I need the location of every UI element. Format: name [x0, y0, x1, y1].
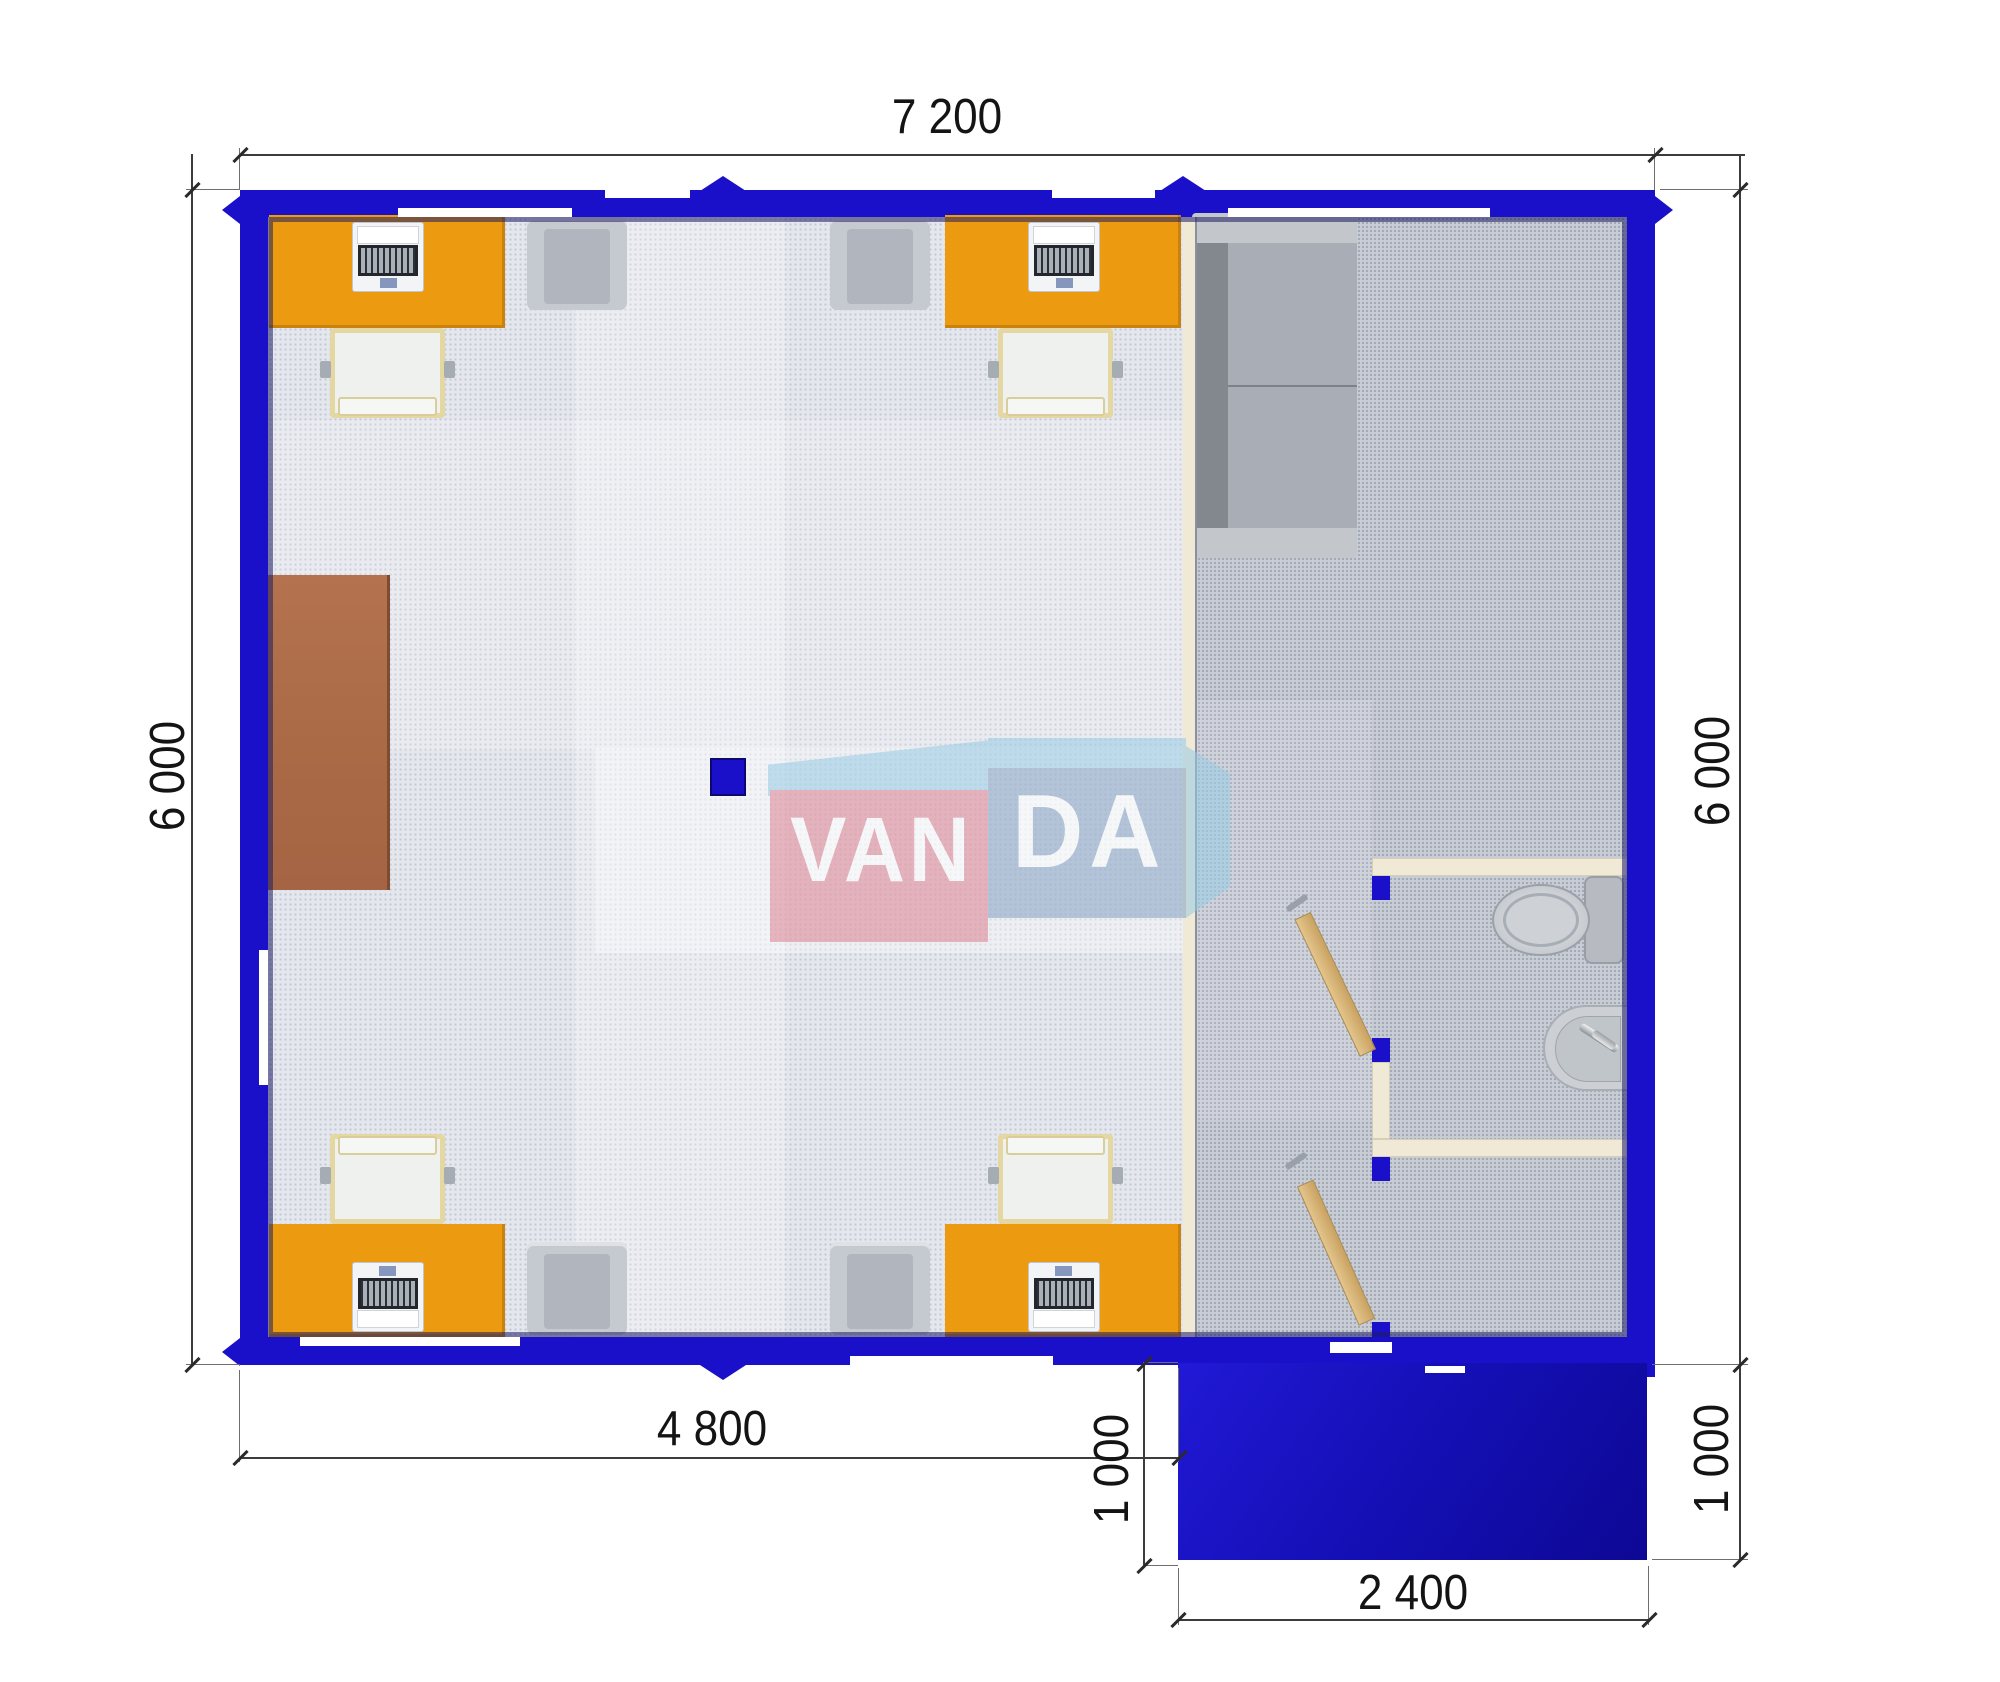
- chair-backrest: [338, 397, 437, 416]
- laptop-screen: [1033, 226, 1095, 244]
- module-joint-marker: [1160, 176, 1206, 191]
- dimension-label-porch-right: 1 000: [1687, 1392, 1737, 1527]
- laptop-keys: [361, 248, 415, 273]
- armchair-top-left: [527, 217, 627, 310]
- module-joint-marker: [700, 176, 746, 191]
- laptop-touchpad: [379, 1266, 396, 1276]
- door-jamb: [1372, 1038, 1390, 1062]
- laptop-touchpad: [1055, 1266, 1072, 1276]
- dimension-label-bottom-office: 4 800: [577, 1404, 847, 1454]
- dimension-label-top: 7 200: [812, 92, 1082, 142]
- vanda-watermark-logo: VAN DA: [768, 738, 1230, 945]
- window-strip: [1052, 190, 1155, 198]
- office-chair-bottom-right: [998, 1134, 1113, 1224]
- module-joint-marker: [222, 1338, 240, 1366]
- laptop-keys: [1037, 1281, 1091, 1306]
- laptop-keys: [1037, 248, 1091, 273]
- laptop-icon-bottom-left: [352, 1262, 424, 1332]
- extension-line: [1652, 1559, 1748, 1560]
- dimension-label-porch-left: 1 000: [1087, 1402, 1137, 1537]
- toilet-tank: [1584, 876, 1624, 964]
- module-joint-marker: [700, 1365, 746, 1380]
- window-strip: [605, 190, 690, 198]
- dimension-label-left: 6 000: [143, 709, 193, 844]
- storage-cabinet: [268, 575, 390, 890]
- toilet-icon: [1492, 884, 1590, 956]
- armchair-seat: [544, 1254, 610, 1329]
- door-jamb: [1372, 1157, 1390, 1181]
- laptop-icon-top-right: [1028, 222, 1100, 292]
- office-chair-top-left: [330, 328, 445, 418]
- laptop-keys: [361, 1281, 415, 1306]
- logo-bevel: [988, 738, 1186, 768]
- bathroom-wall-left-segment: [1372, 1062, 1390, 1139]
- sofa-seat-cushion: [1228, 243, 1357, 387]
- window-strip: [300, 1337, 520, 1346]
- extension-line: [1648, 1566, 1649, 1625]
- sofa-seat-cushion: [1228, 387, 1357, 528]
- laptop-keyboard: [1034, 1278, 1094, 1309]
- dimension-line-porch-left: [1143, 1363, 1145, 1566]
- laptop-keyboard: [358, 245, 418, 276]
- chair-backrest: [1006, 397, 1105, 416]
- logo-text-van: VAN: [790, 804, 973, 896]
- bathroom-divider-wall: [1372, 1139, 1627, 1157]
- dimension-label-porch-bottom: 2 400: [1278, 1568, 1548, 1618]
- logo-text-da: DA: [1012, 780, 1166, 884]
- extension-line: [1660, 189, 1748, 190]
- door-jamb: [1372, 876, 1390, 900]
- armchair-seat: [544, 229, 610, 304]
- laptop-icon-top-left: [352, 222, 424, 292]
- sofa-armrest-bottom: [1192, 528, 1357, 558]
- dimension-line-top: [240, 154, 1745, 156]
- floor-plan-canvas: VAN DA 7 200 6 000 6 000 1 000 4 800 1 0…: [0, 0, 2000, 1682]
- chair-backrest: [1006, 1136, 1105, 1155]
- office-chair-top-right: [998, 328, 1113, 418]
- armchair-bottom-left: [527, 1242, 627, 1335]
- logo-bevel: [1186, 746, 1230, 918]
- door-jamb: [1372, 1322, 1390, 1337]
- laptop-keyboard: [1034, 245, 1094, 276]
- extension-line: [1143, 1565, 1178, 1566]
- armchair-bottom-right: [830, 1242, 930, 1335]
- module-joint-marker: [222, 196, 240, 224]
- porch-door-mark: [1425, 1366, 1465, 1373]
- laptop-touchpad: [380, 278, 397, 288]
- armchair-top-right: [830, 217, 930, 310]
- floor-socket-box: [710, 758, 746, 796]
- extension-line: [239, 1370, 240, 1462]
- dimension-line-right: [1739, 154, 1741, 1560]
- window-strip: [1228, 208, 1490, 217]
- office-chair-bottom-left: [330, 1134, 445, 1224]
- window-strip: [398, 208, 572, 217]
- sofa: [1192, 213, 1357, 558]
- entrance-door-mark: [1330, 1342, 1392, 1353]
- armchair-seat: [847, 1254, 913, 1329]
- dimension-label-right: 6 000: [1688, 704, 1738, 839]
- window-strip: [850, 1356, 1053, 1365]
- laptop-screen: [357, 226, 419, 244]
- extension-line: [1178, 1368, 1179, 1462]
- entrance-porch: [1178, 1363, 1647, 1560]
- logo-bevel: [768, 738, 988, 796]
- bathroom-wall-top: [1372, 858, 1627, 876]
- laptop-icon-bottom-right: [1028, 1262, 1100, 1332]
- window-strip: [259, 950, 268, 1085]
- sofa-armrest-top: [1192, 213, 1357, 243]
- sofa-backrest: [1192, 243, 1228, 528]
- laptop-screen: [1033, 1310, 1095, 1328]
- extension-line: [1652, 1364, 1748, 1365]
- dimension-line-bottom-office: [240, 1457, 1179, 1459]
- laptop-screen: [357, 1310, 419, 1328]
- armchair-seat: [847, 229, 913, 304]
- chair-backrest: [338, 1136, 437, 1155]
- laptop-keyboard: [358, 1278, 418, 1309]
- laptop-touchpad: [1056, 278, 1073, 288]
- module-joint-marker: [1655, 196, 1673, 224]
